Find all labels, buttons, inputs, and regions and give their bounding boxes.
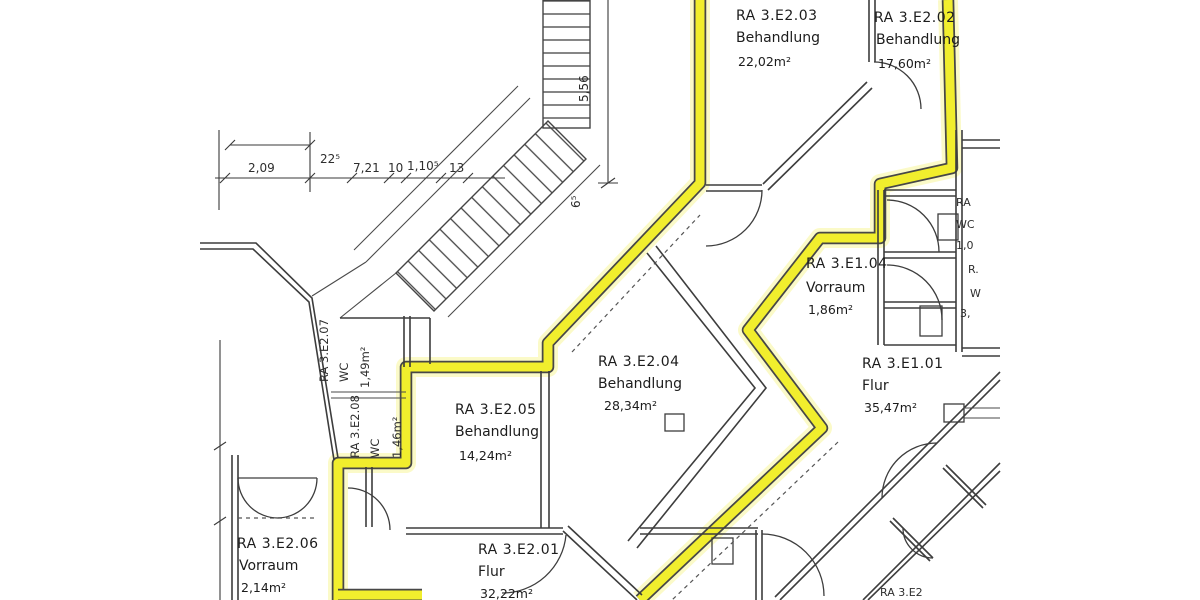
door-arc-e203 bbox=[706, 190, 762, 246]
edge-label: WC bbox=[956, 218, 975, 231]
dim-value: 2,09 bbox=[248, 161, 275, 175]
dim-value: 10 bbox=[388, 161, 403, 175]
room-label-ra-3e2-05: RA 3.E2.05 Behandlung 14,24m² bbox=[455, 402, 539, 463]
stair-flight-diagonal bbox=[396, 121, 586, 311]
stair-landing-edges bbox=[312, 262, 396, 318]
highlight-halo bbox=[640, 0, 952, 600]
dimension-vertical-rail bbox=[598, 0, 618, 188]
edge-label: RA bbox=[956, 196, 971, 209]
stair-flight-vertical bbox=[543, 0, 590, 128]
room-area: 1,86m² bbox=[808, 302, 853, 317]
corridor-dashed-2 bbox=[672, 442, 838, 600]
room-area: 32,22m² bbox=[480, 586, 533, 600]
room-area: 17,60m² bbox=[878, 56, 931, 71]
room-label-ra-3e2-08: RA 3.E2.08 WC 1,46m² bbox=[348, 395, 404, 458]
left-dimension-line bbox=[214, 340, 226, 600]
room-type: Flur bbox=[862, 378, 889, 394]
room-type: Flur bbox=[478, 564, 505, 580]
edge-label: R. bbox=[968, 263, 979, 276]
edge-label: 1,0 bbox=[956, 239, 974, 252]
room-label-ra-3e2-06: RA 3.E2.06 Vorraum 2,14m² bbox=[237, 536, 319, 595]
wall-e205-right bbox=[541, 371, 549, 528]
wc-door-leaf bbox=[366, 467, 372, 527]
staircase bbox=[312, 0, 600, 318]
dim-value-vertical: 6⁵ bbox=[569, 195, 583, 208]
room-id: RA 3.E2.02 bbox=[874, 10, 956, 26]
dim-value: 22⁵ bbox=[320, 152, 340, 166]
room-type: Vorraum bbox=[806, 280, 865, 296]
double-door-arcs bbox=[238, 478, 317, 518]
room-id: RA 3.E2.01 bbox=[478, 542, 560, 558]
highlight-stroke bbox=[640, 0, 952, 600]
door-arc-wc-1 bbox=[887, 200, 939, 252]
room-id: RA 3.E2.08 bbox=[348, 395, 362, 458]
highlight-wall-edges bbox=[640, 0, 952, 600]
edge-label-bottom: RA 3.E2 bbox=[880, 586, 923, 599]
wall-bottom-diagonal bbox=[563, 526, 642, 600]
dim-value: 7,21 bbox=[353, 161, 380, 175]
room-label-ra-3e2-04: RA 3.E2.04 Behandlung 28,34m² bbox=[598, 354, 682, 413]
room-area: 1,46m² bbox=[390, 417, 404, 458]
room-area: 14,24m² bbox=[459, 448, 512, 463]
edge-label: 3, bbox=[960, 307, 971, 320]
room-type: Vorraum bbox=[239, 558, 298, 574]
room-type: Behandlung bbox=[876, 32, 960, 48]
room-label-ra-3e1-04: RA 3.E1.04 Vorraum 1,86m² bbox=[806, 256, 888, 317]
room-type: WC bbox=[368, 439, 382, 458]
wall-wc-divider bbox=[331, 392, 406, 398]
dim-value-vertical: 5,56 bbox=[577, 75, 591, 102]
highlight-path-left bbox=[338, 0, 700, 600]
floor-plan-drawing: 2,09 22⁵ 7,21 10 1,10⁵ 13 5,56 6⁵ RA 3.E… bbox=[0, 0, 1200, 600]
room-area: 35,47m² bbox=[864, 400, 917, 415]
wc-fixture-1 bbox=[938, 214, 958, 240]
edge-label: W bbox=[970, 287, 981, 300]
room-label-ra-3e2-03: RA 3.E2.03 Behandlung 22,02m² bbox=[736, 8, 820, 69]
dim-value: 13 bbox=[449, 161, 464, 175]
room-id: RA 3.E2.03 bbox=[736, 8, 818, 24]
room-area: 22,02m² bbox=[738, 54, 791, 69]
room-id: RA 3.E2.07 bbox=[317, 319, 331, 382]
room-label-ra-3e1-01: RA 3.E1.01 Flur 35,47m² bbox=[862, 356, 944, 415]
wall-wing-cross bbox=[890, 465, 986, 561]
room-area: 1,49m² bbox=[358, 347, 372, 388]
highlight-stroke bbox=[338, 0, 700, 600]
highlight-wall-edges bbox=[338, 0, 700, 600]
room-area: 28,34m² bbox=[604, 398, 657, 413]
wall-left-outer bbox=[232, 455, 238, 600]
floor-plan-canvas: 2,09 22⁵ 7,21 10 1,10⁵ 13 5,56 6⁵ RA 3.E… bbox=[0, 0, 1200, 600]
room-id: RA 3.E1.04 bbox=[806, 256, 888, 272]
room-id: RA 3.E1.01 bbox=[862, 356, 944, 372]
room-id: RA 3.E2.05 bbox=[455, 402, 537, 418]
room-label-ra-3e2-01: RA 3.E2.01 Flur 32,22m² bbox=[478, 542, 560, 600]
symbol-square bbox=[665, 414, 684, 431]
dim-value: 1,10⁵ bbox=[407, 159, 439, 173]
room-id: RA 3.E2.04 bbox=[598, 354, 680, 370]
door-arc-wc-2 bbox=[887, 265, 942, 320]
room-type: WC bbox=[337, 363, 351, 382]
room-label-ra-3e2-07: RA 3.E2.07 WC 1,49m² bbox=[317, 319, 372, 388]
room-type: Behandlung bbox=[598, 376, 682, 392]
room-type: Behandlung bbox=[736, 30, 820, 46]
room-area: 2,14m² bbox=[241, 580, 286, 595]
room-id: RA 3.E2.06 bbox=[237, 536, 319, 552]
highlight-halo bbox=[338, 0, 700, 600]
wall-top-center bbox=[706, 0, 875, 191]
room-type: Behandlung bbox=[455, 424, 539, 440]
wc-fixture-2 bbox=[920, 306, 942, 336]
wc-door-arc bbox=[348, 488, 390, 530]
highlight-path-right bbox=[640, 0, 952, 600]
